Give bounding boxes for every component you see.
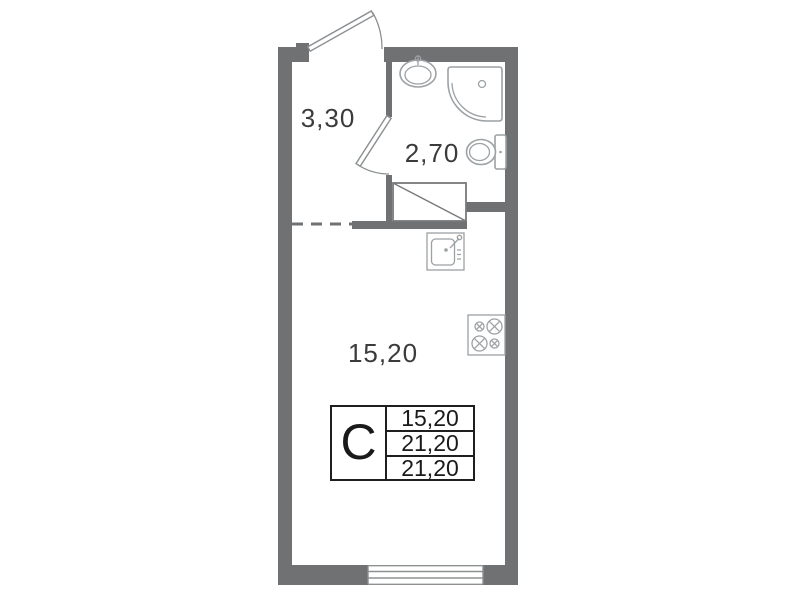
stove-burner-bottom-right-cross bbox=[492, 341, 498, 347]
wall-right bbox=[505, 47, 518, 585]
stove-burner-top-left-cross bbox=[477, 324, 483, 330]
bathroom-stub-wall bbox=[466, 202, 505, 212]
partition-wall-upper bbox=[386, 62, 392, 117]
legend-total-area-1: 21,20 bbox=[387, 430, 473, 455]
floor-plan: 3,30 2,70 15,20 С 15,20 21,20 21,20 bbox=[0, 0, 799, 600]
legend-total-area-2: 21,20 bbox=[387, 455, 473, 480]
kitchen-sink-drain bbox=[444, 248, 448, 252]
entrance-door-swing-arc bbox=[373, 13, 382, 49]
kitchen-sink-tap-head bbox=[457, 235, 461, 239]
floor-plan-drawing bbox=[0, 0, 799, 600]
legend-type-letter: С bbox=[332, 407, 387, 480]
shower-icon bbox=[448, 67, 502, 121]
legend-table: С 15,20 21,20 21,20 bbox=[330, 405, 475, 481]
window-icon bbox=[368, 565, 483, 585]
room-top-wall bbox=[352, 221, 467, 229]
bathroom-door-icon bbox=[356, 116, 391, 174]
toilet-icon bbox=[467, 135, 507, 169]
entrance-door-leaf bbox=[308, 11, 374, 51]
kitchen-sink-drainboard-ticks bbox=[457, 250, 461, 259]
kitchen-sink-basin bbox=[432, 239, 455, 265]
bathroom-area-label: 2,70 bbox=[405, 138, 460, 169]
stove-burner-top-right-cross bbox=[489, 321, 499, 331]
stove-icon bbox=[468, 315, 505, 355]
wall-top-step bbox=[296, 43, 309, 48]
shower-tray-outline bbox=[448, 67, 502, 121]
living-room-area-label: 15,20 bbox=[348, 338, 418, 369]
wall-left bbox=[278, 47, 292, 585]
wall-top-left-segment bbox=[278, 47, 309, 62]
kitchen-sink-icon bbox=[427, 233, 464, 270]
toilet-tank-button bbox=[499, 151, 502, 154]
bathroom-door-leaf bbox=[356, 116, 391, 167]
entrance-door-icon bbox=[308, 11, 382, 51]
stove-burner-bottom-left-cross bbox=[474, 338, 484, 348]
window-opening bbox=[368, 565, 483, 585]
partition-wall-lower bbox=[386, 175, 392, 222]
closet-icon bbox=[393, 183, 466, 221]
wall-top-right-segment bbox=[384, 47, 518, 62]
legend-living-area: 15,20 bbox=[387, 407, 473, 430]
bathroom-door-swing-arc bbox=[358, 165, 389, 174]
hallway-area-label: 3,30 bbox=[301, 103, 356, 134]
